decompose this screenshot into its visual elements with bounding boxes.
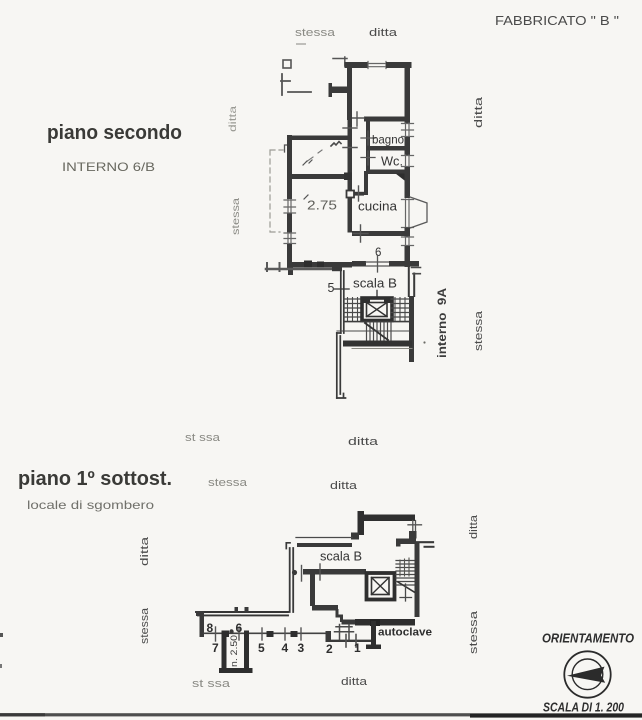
svg-text:interno 9A: interno 9A bbox=[437, 288, 449, 358]
svg-text:scala B: scala B bbox=[353, 277, 397, 291]
svg-text:ORIENTAMENTO: ORIENTAMENTO bbox=[542, 632, 634, 646]
svg-text:stessa: stessa bbox=[208, 477, 248, 489]
svg-text:n. 2.50: n. 2.50 bbox=[229, 635, 239, 667]
svg-text:cucina: cucina bbox=[358, 200, 397, 214]
svg-text:st ssa: st ssa bbox=[192, 678, 231, 690]
svg-text:5: 5 bbox=[328, 281, 335, 295]
svg-text:5: 5 bbox=[258, 641, 265, 655]
svg-text:ditta: ditta bbox=[369, 27, 398, 39]
svg-text:piano 1º sottost.: piano 1º sottost. bbox=[18, 467, 172, 490]
svg-text:2.75: 2.75 bbox=[307, 198, 337, 213]
svg-text:1: 1 bbox=[354, 641, 361, 655]
svg-text:Wc.: Wc. bbox=[381, 155, 403, 169]
svg-text:ditta: ditta bbox=[139, 536, 151, 566]
svg-text:scala B: scala B bbox=[320, 550, 362, 564]
svg-text:autoclave: autoclave bbox=[378, 627, 432, 639]
svg-text:stessa: stessa bbox=[473, 310, 485, 351]
svg-text:4: 4 bbox=[282, 641, 289, 655]
svg-text:ditta: ditta bbox=[330, 480, 358, 492]
svg-text:st ssa: st ssa bbox=[185, 432, 221, 444]
svg-text:piano secondo: piano secondo bbox=[47, 121, 182, 144]
svg-text:bagno: bagno bbox=[372, 133, 404, 147]
svg-text:3: 3 bbox=[298, 641, 305, 655]
svg-text:6: 6 bbox=[375, 247, 381, 259]
svg-text:7: 7 bbox=[212, 641, 219, 655]
svg-text:locale di sgombero: locale di sgombero bbox=[27, 498, 154, 512]
svg-text:ditta: ditta bbox=[341, 676, 368, 688]
svg-text:stessa: stessa bbox=[295, 27, 336, 39]
svg-text:FABBRICATO " B ": FABBRICATO " B " bbox=[495, 14, 619, 28]
svg-text:2: 2 bbox=[326, 642, 333, 656]
svg-text:stessa: stessa bbox=[231, 197, 242, 235]
svg-text:6: 6 bbox=[236, 621, 243, 635]
svg-text:ditta: ditta bbox=[473, 96, 485, 128]
svg-text:stessa: stessa bbox=[468, 610, 480, 654]
svg-text:ditta: ditta bbox=[228, 105, 239, 132]
svg-text:SCALA DI 1. 200: SCALA DI 1. 200 bbox=[543, 700, 625, 715]
svg-text:stessa: stessa bbox=[139, 607, 151, 644]
svg-text:INTERNO 6/B: INTERNO 6/B bbox=[62, 160, 155, 174]
svg-text:ditta: ditta bbox=[348, 436, 379, 448]
svg-text:ditta: ditta bbox=[468, 514, 480, 539]
svg-text:8: 8 bbox=[207, 621, 214, 635]
